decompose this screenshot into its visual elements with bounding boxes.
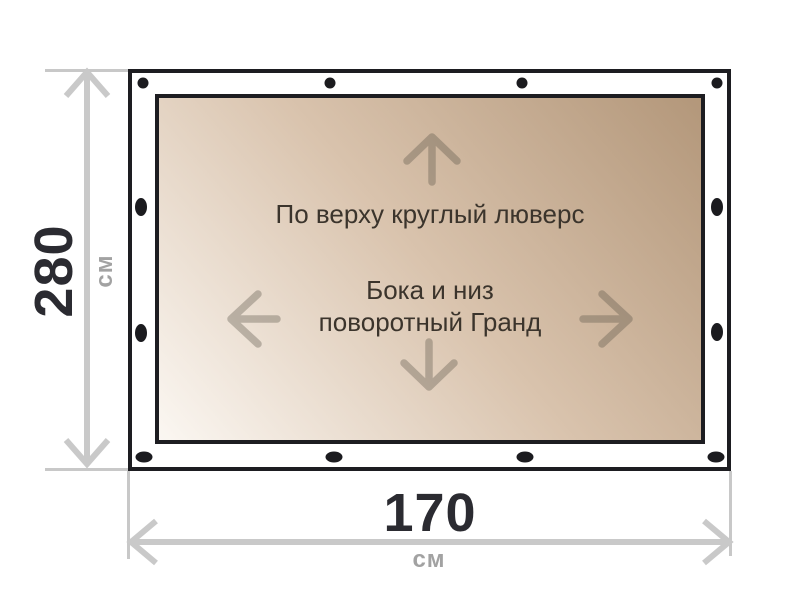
grommet-bottom-4 — [708, 452, 725, 463]
grommet-top-3 — [517, 78, 528, 89]
body-note: Бока и низ поворотный Гранд — [159, 274, 701, 338]
grommet-bottom-2 — [326, 452, 343, 463]
width-unit: см — [369, 547, 489, 573]
grommet-left-1 — [135, 198, 147, 216]
grommet-right-1 — [711, 198, 723, 216]
arrow-up-icon — [404, 133, 460, 185]
grommet-top-4 — [712, 78, 723, 89]
grommet-top-2 — [325, 78, 336, 89]
body-note-line1: Бока и низ — [159, 274, 701, 306]
tarp-size-diagram: 280 см 170 см — [0, 0, 800, 600]
grommet-bottom-1 — [136, 452, 153, 463]
grommet-top-1 — [138, 78, 149, 89]
height-value: 280 — [27, 190, 81, 352]
tarp-outline: По верху круглый люверс Бока и низ повор… — [128, 69, 731, 471]
grommet-left-2 — [135, 324, 147, 342]
top-edge-note: По верху круглый люверс — [159, 198, 701, 230]
arrow-down-icon — [401, 337, 457, 391]
height-unit: см — [92, 231, 118, 311]
body-note-line2: поворотный Гранд — [159, 306, 701, 338]
width-value: 170 — [310, 486, 550, 540]
grommet-bottom-3 — [517, 452, 534, 463]
grommet-right-2 — [711, 323, 723, 341]
fabric-panel: По верху круглый люверс Бока и низ повор… — [155, 94, 705, 444]
